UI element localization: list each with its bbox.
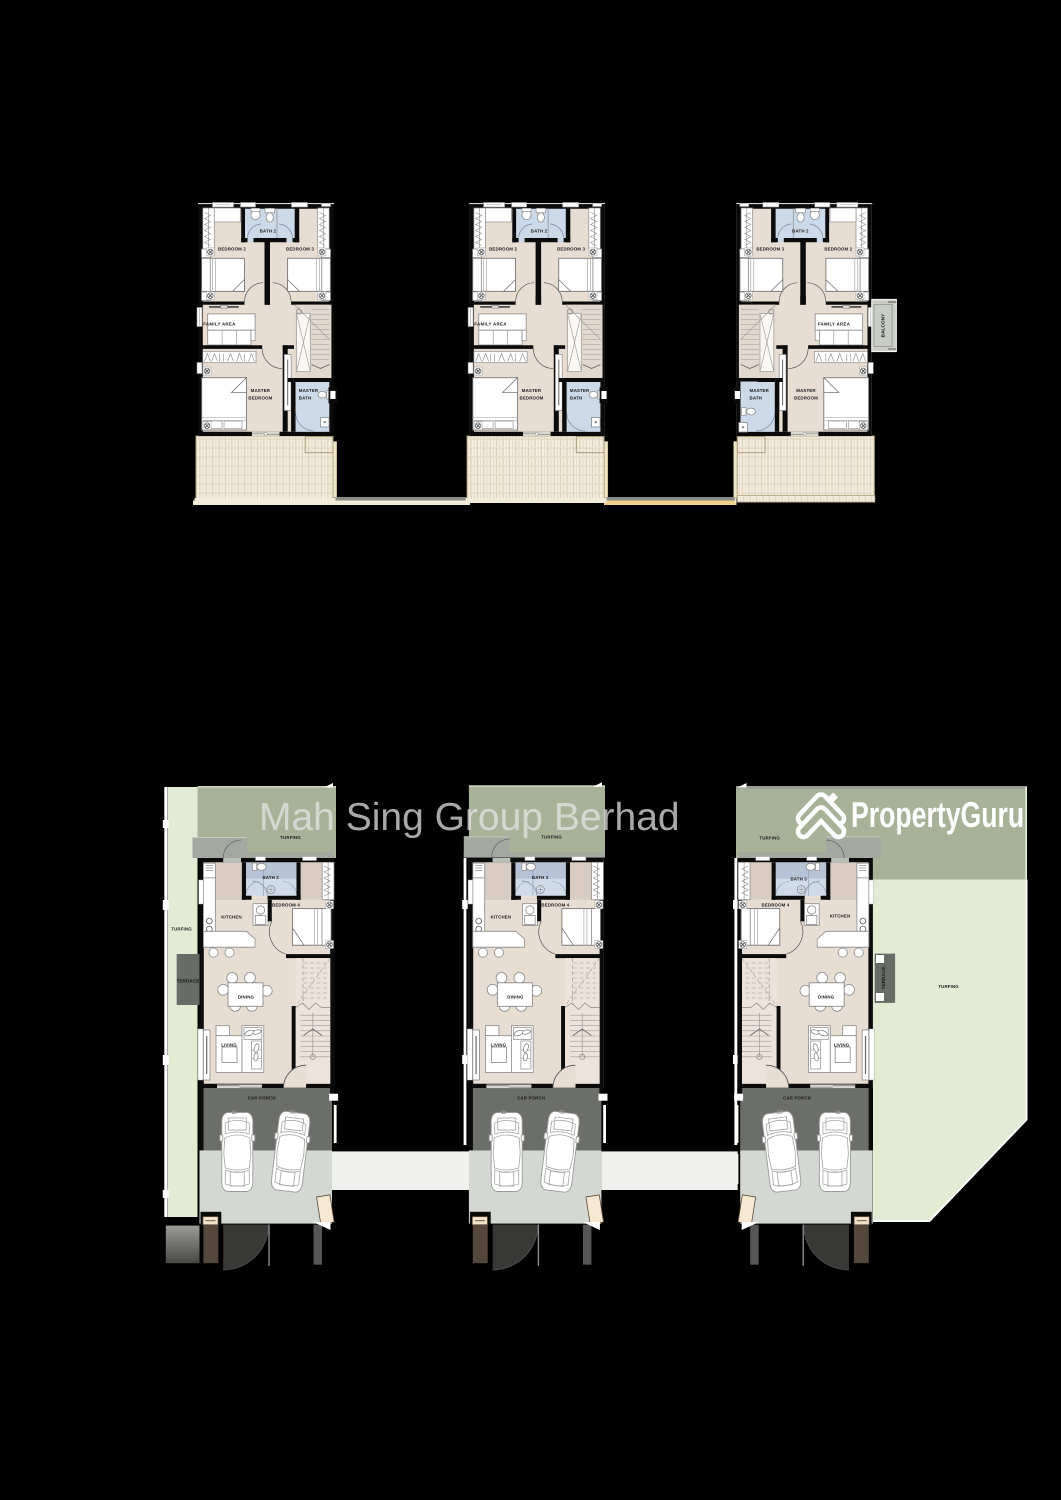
svg-text:TURFING: TURFING — [171, 927, 192, 932]
svg-text:MASTER: MASTER — [796, 388, 816, 393]
svg-text:BEDROOM: BEDROOM — [794, 396, 818, 401]
svg-text:BEDROOM 2: BEDROOM 2 — [489, 247, 517, 252]
svg-text:PropertyGuru: PropertyGuru — [851, 794, 1024, 835]
svg-text:BATH 3: BATH 3 — [790, 877, 807, 882]
svg-text:LIVING: LIVING — [491, 1043, 507, 1048]
svg-text:FAMILY AREA: FAMILY AREA — [474, 322, 507, 327]
svg-text:BEDROOM 2: BEDROOM 2 — [824, 247, 852, 252]
svg-text:BEDROOM: BEDROOM — [248, 396, 272, 401]
svg-text:CAR PORCH: CAR PORCH — [783, 1096, 811, 1101]
svg-text:BALCONY: BALCONY — [881, 314, 886, 338]
svg-text:CAR PORCH: CAR PORCH — [248, 1096, 276, 1101]
svg-text:BEDROOM 3: BEDROOM 3 — [286, 247, 314, 252]
svg-text:MASTER: MASTER — [750, 388, 770, 393]
svg-text:CAR PORCH: CAR PORCH — [517, 1096, 545, 1101]
svg-text:MASTER: MASTER — [251, 388, 271, 393]
svg-text:KITCHEN: KITCHEN — [221, 915, 242, 920]
svg-text:TURFING: TURFING — [759, 836, 780, 841]
svg-text:MASTER: MASTER — [299, 388, 319, 393]
svg-text:DINING: DINING — [238, 995, 255, 1000]
svg-text:BEDROOM 4: BEDROOM 4 — [762, 903, 790, 908]
svg-text:BEDROOM: BEDROOM — [520, 396, 544, 401]
svg-text:BEDROOM 4: BEDROOM 4 — [541, 903, 569, 908]
svg-text:BEDROOM 3: BEDROOM 3 — [756, 247, 784, 252]
svg-text:TURFING: TURFING — [938, 984, 959, 989]
svg-text:BATH 2: BATH 2 — [260, 229, 277, 234]
svg-text:BATH 2: BATH 2 — [792, 229, 809, 234]
svg-text:DINING: DINING — [507, 995, 524, 1000]
svg-text:KITCHEN: KITCHEN — [830, 914, 851, 919]
svg-text:BATH 3: BATH 3 — [262, 875, 279, 880]
svg-text:BEDROOM 3: BEDROOM 3 — [557, 247, 585, 252]
svg-text:BATH: BATH — [570, 396, 582, 401]
svg-text:BEDROOM 2: BEDROOM 2 — [218, 247, 246, 252]
svg-text:BATH: BATH — [750, 396, 762, 401]
svg-text:BEDROOM 4: BEDROOM 4 — [272, 903, 300, 908]
svg-text:MASTER: MASTER — [570, 388, 590, 393]
svg-text:LIVING: LIVING — [221, 1043, 237, 1048]
svg-text:FAMILY AREA: FAMILY AREA — [818, 322, 851, 327]
svg-text:DINING: DINING — [818, 995, 835, 1000]
svg-text:BATH 3: BATH 3 — [532, 875, 549, 880]
svg-text:TERRACE: TERRACE — [881, 967, 886, 990]
svg-text:TERRACE: TERRACE — [177, 979, 200, 984]
svg-text:BATH 2: BATH 2 — [531, 229, 548, 234]
svg-text:BATH: BATH — [299, 396, 311, 401]
svg-text:Mah Sing Group Berhad: Mah Sing Group Berhad — [259, 796, 680, 839]
svg-text:FAMILY AREA: FAMILY AREA — [203, 322, 236, 327]
svg-text:MASTER: MASTER — [522, 388, 542, 393]
svg-text:KITCHEN: KITCHEN — [491, 915, 512, 920]
svg-text:LIVING: LIVING — [834, 1043, 850, 1048]
